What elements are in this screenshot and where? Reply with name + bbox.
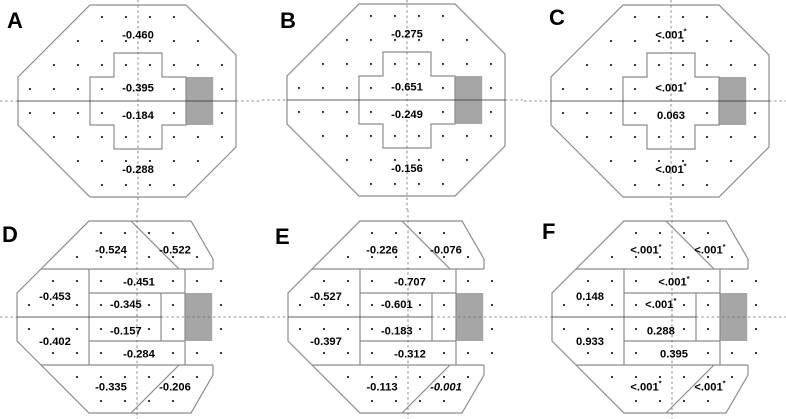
test-point-dot [706,64,708,66]
test-point-dot [490,135,492,137]
test-point-dot [149,184,151,186]
test-point-dot [443,304,445,306]
value-superior-arcuate: -0.707 [394,277,426,289]
test-point-dot [587,304,589,306]
test-point-dot [346,63,348,65]
test-point-dot [466,63,468,65]
test-point-dot [346,39,348,41]
value-inferior-right: -0.206 [159,381,191,393]
test-point-dot [755,328,757,330]
test-point-dot [658,160,660,162]
test-point-dot [347,280,349,282]
test-point-dot [611,352,613,354]
test-point-dot [370,159,372,161]
test-point-dot [419,328,421,330]
test-point-dot [173,184,175,186]
test-point-dot [490,63,492,65]
test-point-dot [442,87,444,89]
test-point-dot [491,280,493,282]
test-point-dot [347,256,349,258]
test-point-dot [346,87,348,89]
test-point-dot [731,256,733,258]
test-point-dot [586,64,588,66]
test-point-dot [635,304,637,306]
test-point-dot [52,304,54,306]
value-superior-left: <.001* [630,241,661,256]
test-point-dot [370,87,372,89]
test-point-dot [149,16,151,18]
test-point-dot [563,328,565,330]
significance-asterisk: * [684,79,687,88]
panel-letter-f: F [542,221,555,243]
visual-field-map-b: -0.275-0.651-0.249-0.156 [262,0,524,210]
test-point-dot [635,400,637,402]
test-point-dot [125,64,127,66]
test-point-dot [196,352,198,354]
test-point-dot [754,112,756,114]
test-point-dot [124,376,126,378]
test-point-dot [706,88,708,90]
test-point-dot [682,184,684,186]
visual-field-map-c: <.001*<.001*0.063<.001* [524,0,786,210]
test-point-dot [148,304,150,306]
test-point-dot [53,136,55,138]
test-point-dot [419,400,421,402]
test-point-dot [173,136,175,138]
test-point-dot [220,352,222,354]
panel-b: B -0.275-0.651-0.249-0.156 [262,0,524,210]
test-point-dot [100,280,102,282]
test-point-dot [173,160,175,162]
test-point-dot [442,39,444,41]
test-point-dot [298,111,300,113]
test-point-dot [683,328,685,330]
test-point-dot [586,88,588,90]
test-point-dot [466,39,468,41]
visual-field-map-f: <.001*<.001*<.001*0.148<.001*0.2880.9330… [524,210,786,419]
test-point-dot [610,64,612,66]
value-central-inferior: -0.249 [391,109,423,121]
test-point-dot [371,232,373,234]
test-point-dot [443,352,445,354]
test-point-dot [322,87,324,89]
figure-canvas: A -0.460-0.395-0.184-0.288 B -0.275-0.65… [0,0,786,419]
value-inferior-nasal: -0.402 [39,336,71,348]
test-point-dot [172,304,174,306]
significance-asterisk: * [723,378,726,387]
test-point-dot [611,280,613,282]
test-point-dot [323,328,325,330]
test-point-dot [172,328,174,330]
test-point-dot [683,304,685,306]
test-point-dot [53,64,55,66]
test-point-dot [149,136,151,138]
test-point-dot [634,184,636,186]
test-point-dot [707,304,709,306]
value-superior-right: <.001* [694,241,725,256]
significance-asterisk: * [687,273,690,282]
test-point-dot [611,328,613,330]
test-point-dot [418,159,420,161]
test-point-dot [395,376,397,378]
test-point-dot [100,376,102,378]
value-central-superior: -0.395 [122,83,154,95]
test-point-dot [76,352,78,354]
test-point-dot [442,159,444,161]
test-point-dot [196,256,198,258]
test-point-dot [731,352,733,354]
test-point-dot [418,63,420,65]
test-point-dot [371,328,373,330]
test-point-dot [562,88,564,90]
test-point-dot [730,160,732,162]
test-point-dot [730,40,732,42]
test-point-dot [490,111,492,113]
test-point-dot [77,160,79,162]
test-point-dot [443,376,445,378]
test-point-dot [101,40,103,42]
panel-e: E -0.226-0.076-0.707-0.527-0.601-0.183-0… [262,210,524,419]
value-superior-arcuate: -0.451 [123,277,155,289]
test-point-dot [491,304,493,306]
test-point-dot [706,136,708,138]
test-point-dot [466,135,468,137]
test-point-dot [586,136,588,138]
test-point-dot [371,352,373,354]
test-point-dot [418,135,420,137]
test-point-dot [491,352,493,354]
test-point-dot [28,304,30,306]
test-point-dot [395,232,397,234]
test-point-dot [658,184,660,186]
test-point-dot [172,376,174,378]
panel-letter-c: C [549,7,565,29]
test-point-dot [635,280,637,282]
test-point-dot [148,328,150,330]
value-superior-nasal: -0.453 [39,291,71,303]
test-point-dot [77,40,79,42]
significance-asterisk: * [723,241,726,250]
test-point-dot [323,352,325,354]
test-point-dot [221,136,223,138]
test-point-dot [634,40,636,42]
value-central-superior: <.001* [655,79,686,94]
test-point-dot [220,280,222,282]
test-point-dot [322,63,324,65]
value-superior: <.001* [655,26,686,41]
test-point-dot [323,304,325,306]
test-point-dot [125,184,127,186]
test-point-dot [100,232,102,234]
test-point-dot [755,280,757,282]
test-point-dot [731,280,733,282]
value-inferior-right: -0.001 [430,381,462,393]
test-point-dot [611,304,613,306]
value-inferior-right: <.001* [694,378,725,393]
value-superior-right: -0.076 [430,245,462,257]
test-point-dot [707,232,709,234]
test-point-dot [610,88,612,90]
test-point-dot [196,280,198,282]
test-point-dot [370,111,372,113]
panel-f: F <.001*<.001*<.001*0.148<.001*0.2880.93… [524,210,786,419]
test-point-dot [371,376,373,378]
test-point-dot [610,40,612,42]
test-point-dot [683,400,685,402]
value-superior-right: -0.522 [159,245,191,257]
test-point-dot [52,352,54,354]
test-point-dot [418,15,420,17]
value-inferior-left: <.001* [630,378,661,393]
test-point-dot [149,64,151,66]
test-point-dot [706,184,708,186]
test-point-dot [172,400,174,402]
test-point-dot [101,16,103,18]
test-point-dot [610,160,612,162]
test-point-dot [77,136,79,138]
test-point-dot [394,159,396,161]
test-point-dot [76,304,78,306]
test-point-dot [101,88,103,90]
test-point-dot [221,88,223,90]
test-point-dot [370,135,372,137]
test-point-dot [634,16,636,18]
test-point-dot [76,280,78,282]
test-point-dot [707,328,709,330]
test-point-dot [419,256,421,258]
test-point-dot [394,135,396,137]
value-inferior-arcuate: 0.395 [660,349,688,361]
test-point-dot [706,160,708,162]
value-central-inferior: 0.288 [647,325,675,337]
significance-asterisk: * [684,26,687,35]
test-point-dot [707,400,709,402]
test-point-dot [659,232,661,234]
test-point-dot [491,328,493,330]
test-point-dot [299,328,301,330]
value-superior: -0.275 [391,28,423,40]
test-point-dot [172,280,174,282]
test-point-dot [52,280,54,282]
test-point-dot [442,111,444,113]
test-point-dot [77,112,79,114]
test-point-dot [77,88,79,90]
test-point-dot [173,88,175,90]
test-point-dot [148,232,150,234]
test-point-dot [754,88,756,90]
test-point-dot [634,88,636,90]
test-point-dot [220,328,222,330]
test-point-dot [29,112,31,114]
significance-asterisk: * [684,161,687,170]
test-point-dot [731,376,733,378]
test-point-dot [683,256,685,258]
test-point-dot [298,87,300,89]
test-point-dot [706,40,708,42]
test-point-dot [197,160,199,162]
test-point-dot [707,352,709,354]
value-central-inferior: -0.183 [381,325,413,337]
test-point-dot [322,111,324,113]
test-point-dot [730,136,732,138]
test-point-dot [370,183,372,185]
test-point-dot [347,328,349,330]
test-point-dot [125,136,127,138]
test-point-dot [611,256,613,258]
test-point-dot [706,16,708,18]
test-point-dot [100,400,102,402]
value-central-superior: -0.345 [110,299,142,311]
value-inferior-arcuate: -0.284 [123,349,155,361]
test-point-dot [173,64,175,66]
panel-c: C <.001*<.001*0.063<.001* [524,0,786,210]
test-point-dot [659,256,661,258]
test-point-dot [100,304,102,306]
panel-d: D -0.524-0.522-0.451-0.453-0.345-0.157-0… [0,210,262,419]
test-point-dot [658,64,660,66]
panel-letter-e: E [275,226,290,248]
test-point-dot [587,280,589,282]
test-point-dot [635,328,637,330]
test-point-dot [467,376,469,378]
test-point-dot [443,280,445,282]
test-point-dot [100,352,102,354]
test-point-dot [706,112,708,114]
value-superior-nasal: -0.527 [310,291,342,303]
test-point-dot [442,183,444,185]
value-central-superior: -0.651 [391,82,423,94]
test-point-dot [125,160,127,162]
test-point-dot [370,15,372,17]
test-point-dot [101,184,103,186]
test-point-dot [148,256,150,258]
test-point-dot [635,352,637,354]
test-point-dot [371,400,373,402]
test-point-dot [371,304,373,306]
test-point-dot [173,40,175,42]
test-point-dot [221,112,223,114]
value-inferior: -0.156 [391,163,423,175]
test-point-dot [419,232,421,234]
test-point-dot [149,160,151,162]
test-point-dot [658,136,660,138]
value-central-superior: <.001* [645,296,676,311]
test-point-dot [347,304,349,306]
value-inferior-arcuate: -0.312 [394,349,426,361]
test-point-dot [124,400,126,402]
test-point-dot [442,15,444,17]
test-point-dot [419,304,421,306]
test-point-dot [586,112,588,114]
test-point-dot [322,135,324,137]
test-point-dot [394,183,396,185]
test-point-dot [682,16,684,18]
test-point-dot [29,88,31,90]
test-point-dot [299,304,301,306]
visual-field-map-e: -0.226-0.076-0.707-0.527-0.601-0.183-0.3… [262,210,524,419]
test-point-dot [682,64,684,66]
test-point-dot [442,135,444,137]
test-point-dot [76,328,78,330]
value-central-inferior: 0.063 [657,110,685,122]
test-point-dot [419,376,421,378]
test-point-dot [443,328,445,330]
test-point-dot [370,39,372,41]
test-point-dot [490,87,492,89]
test-point-dot [467,256,469,258]
test-point-dot [394,63,396,65]
test-point-dot [173,112,175,114]
test-point-dot [635,376,637,378]
significance-asterisk: * [673,296,676,305]
test-point-dot [323,280,325,282]
test-point-dot [634,112,636,114]
test-point-dot [370,63,372,65]
test-point-dot [659,400,661,402]
panel-a: A -0.460-0.395-0.184-0.288 [0,0,262,210]
test-point-dot [347,376,349,378]
test-point-dot [197,40,199,42]
test-point-dot [77,64,79,66]
test-point-dot [172,232,174,234]
test-point-dot [76,376,78,378]
test-point-dot [563,304,565,306]
test-point-dot [53,112,55,114]
test-point-dot [53,88,55,90]
value-inferior-nasal: 0.933 [576,336,604,348]
test-point-dot [394,15,396,17]
significance-asterisk: * [659,378,662,387]
test-point-dot [197,136,199,138]
value-central-inferior: -0.157 [110,325,142,337]
value-superior-left: -0.524 [95,245,127,257]
test-point-dot [346,135,348,137]
test-point-dot [755,304,757,306]
value-superior: -0.460 [122,29,154,41]
test-point-dot [346,159,348,161]
test-point-dot [101,64,103,66]
test-point-dot [76,256,78,258]
test-point-dot [172,352,174,354]
test-point-dot [707,376,709,378]
test-point-dot [443,232,445,234]
test-point-dot [101,160,103,162]
value-inferior-nasal: -0.397 [310,336,342,348]
test-point-dot [347,352,349,354]
test-point-dot [101,112,103,114]
test-point-dot [683,232,685,234]
test-point-dot [418,183,420,185]
test-point-dot [730,64,732,66]
test-point-dot [754,136,756,138]
test-point-dot [587,352,589,354]
test-point-dot [395,400,397,402]
test-point-dot [754,64,756,66]
test-point-dot [124,232,126,234]
test-point-dot [443,400,445,402]
test-point-dot [610,112,612,114]
value-inferior-left: -0.113 [366,381,397,393]
test-point-dot [467,280,469,282]
test-point-dot [148,376,150,378]
panel-letter-a: A [7,10,23,32]
test-point-dot [562,112,564,114]
test-point-dot [658,16,660,18]
test-point-dot [682,136,684,138]
value-superior-arcuate: <.001* [658,273,689,288]
test-point-dot [125,16,127,18]
test-point-dot [173,16,175,18]
